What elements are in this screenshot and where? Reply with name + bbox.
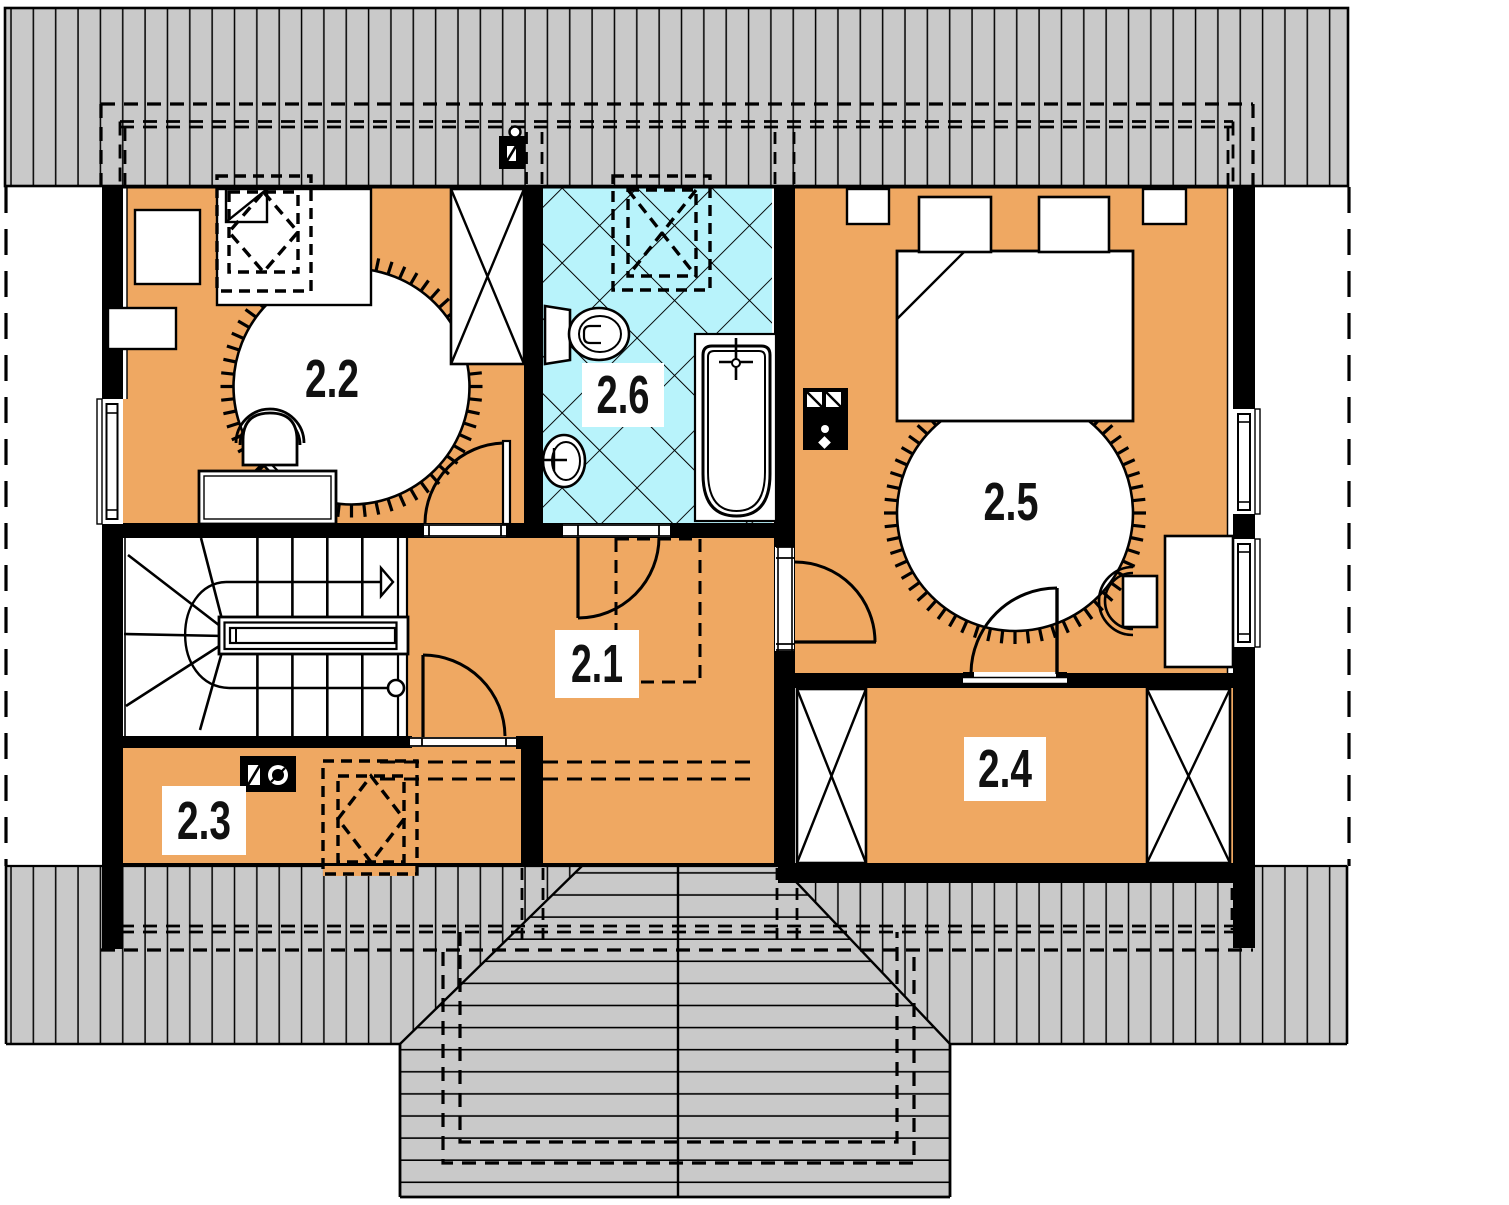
svg-text:2.6: 2.6 [597,365,650,425]
svg-text:2.1: 2.1 [571,634,623,694]
svg-text:2.4: 2.4 [978,739,1032,799]
svg-text:2.5: 2.5 [984,472,1039,532]
svg-text:2.2: 2.2 [305,349,359,409]
svg-text:2.3: 2.3 [177,791,231,851]
